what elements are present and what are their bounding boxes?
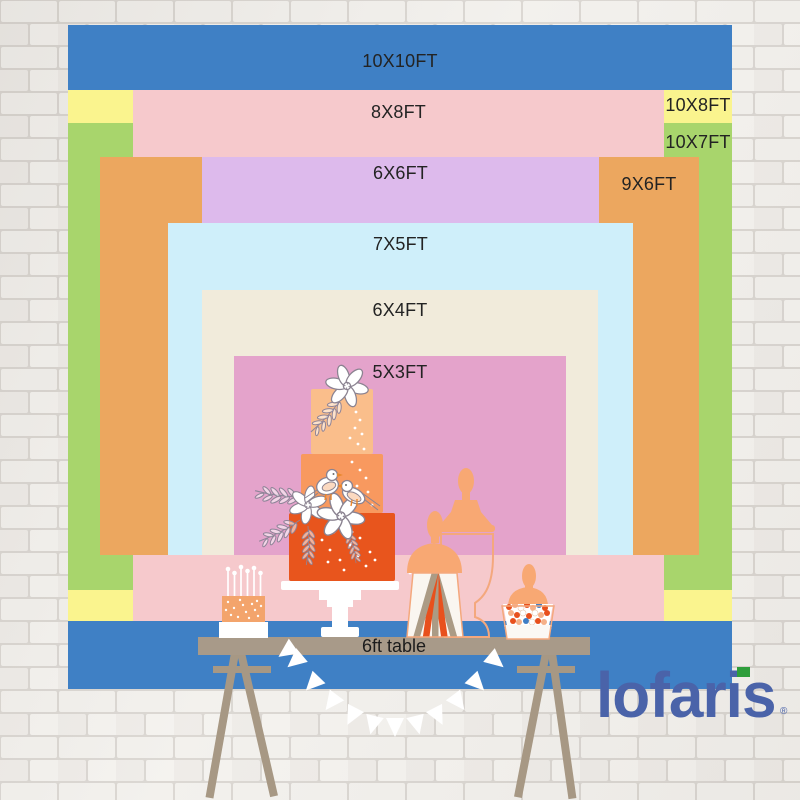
size-label-7x5: 7X5FT xyxy=(168,235,633,253)
size-label-6x4: 6X4FT xyxy=(202,301,598,319)
size-label-10x10: 10X10FT xyxy=(68,52,732,70)
table-size-label: 6ft table xyxy=(198,638,590,655)
table-rung xyxy=(213,666,271,673)
dessert-table: 6ft table xyxy=(198,637,590,655)
size-label-8x8: 8X8FT xyxy=(133,103,664,121)
backdrop-5x3: 5X3FT xyxy=(234,356,566,555)
logo-i-dot xyxy=(737,667,750,677)
size-label-5x3: 5X3FT xyxy=(234,363,566,381)
table-rung xyxy=(517,666,575,673)
size-label-9x6: 9X6FT xyxy=(599,175,699,193)
size-label-6x6: 6X6FT xyxy=(202,164,599,182)
size-label-10x7: 10X7FT xyxy=(664,133,732,151)
registered-trademark-icon: ® xyxy=(780,706,787,717)
product-image: 10X10FT 10X8FT 10X7FT 8X8FT 9X6FT 6X6FT … xyxy=(0,0,800,800)
size-label-10x8: 10X8FT xyxy=(664,96,732,114)
